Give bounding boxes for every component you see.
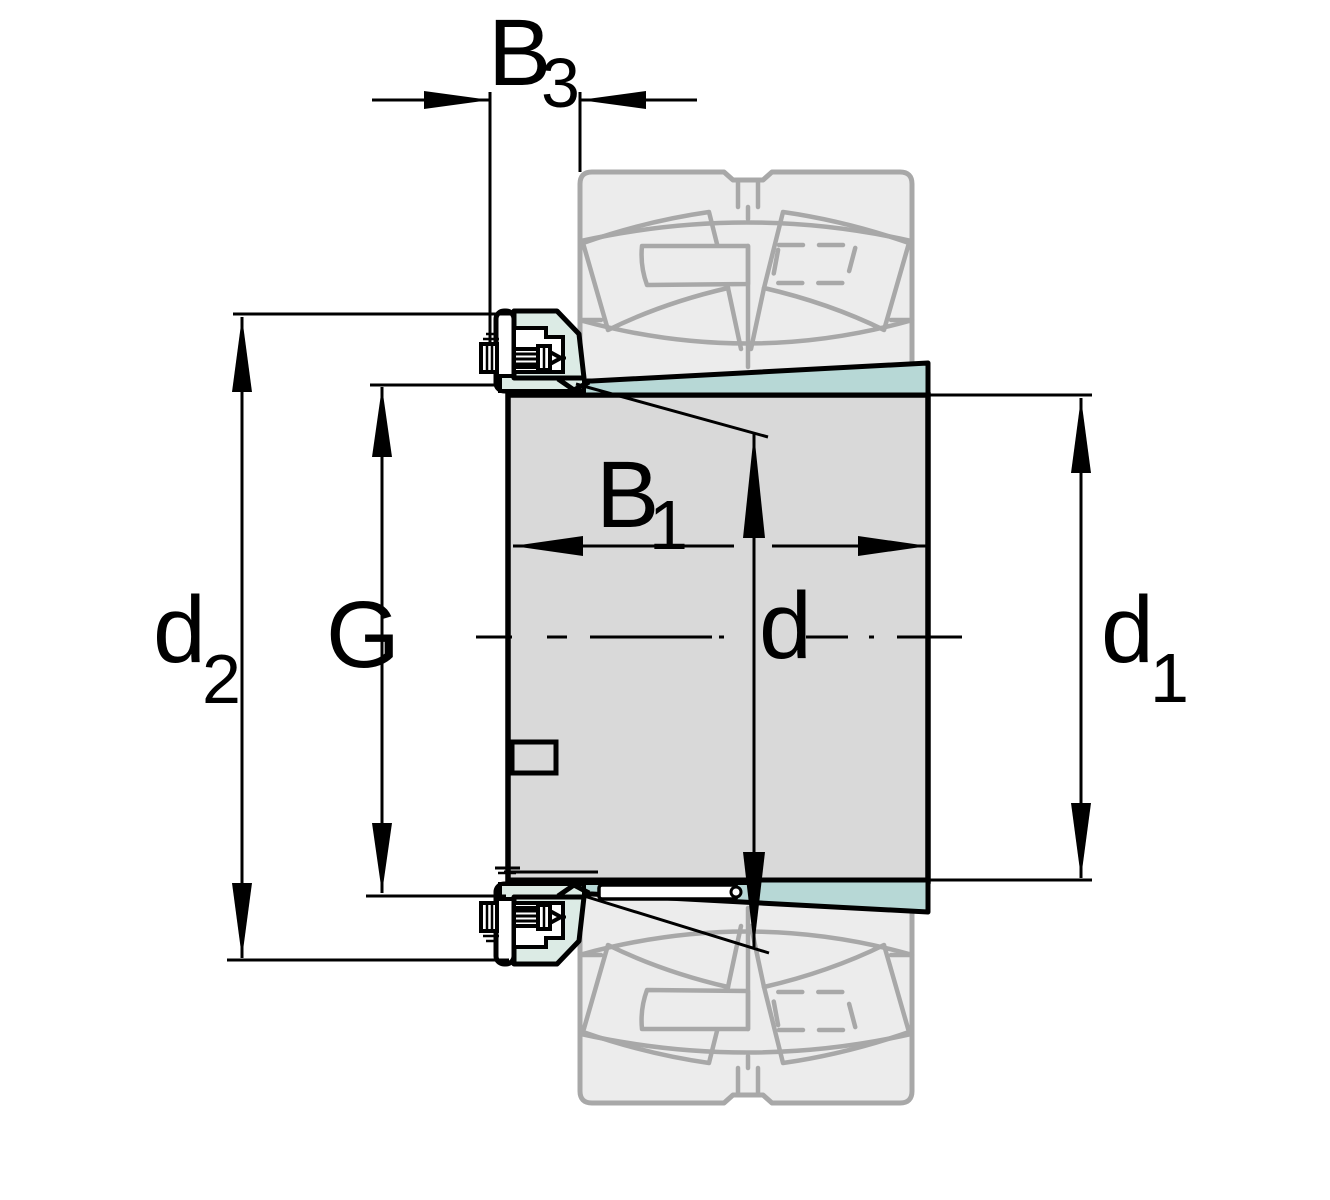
dim-b3-arrow-right: [580, 91, 646, 109]
dim-b3-extension-lines: [490, 92, 580, 344]
dim-label-d1: d: [1101, 577, 1154, 683]
technical-drawing-canvas: B 3 d 2 G B 1 d d 1: [0, 0, 1330, 1200]
dim-b3-arrow-left: [424, 91, 490, 109]
bearing-cage-bar: [642, 246, 748, 285]
dim-label-d2: d: [153, 577, 206, 683]
dim-d2-arrow-bottom: [232, 883, 252, 958]
dim-label-g: G: [326, 582, 400, 688]
dim-label-d: d: [759, 573, 812, 679]
dim-g-arrow-top: [372, 387, 392, 457]
dim-d1-arrow-bottom: [1071, 803, 1091, 878]
dim-d1: d 1: [930, 395, 1189, 880]
keyway-notch: [512, 742, 556, 773]
dim-label-b1-sub: 1: [649, 486, 688, 564]
dim-g-arrow-bottom: [372, 823, 392, 893]
dim-label-d2-sub: 2: [202, 640, 241, 718]
dim-label-b3-sub: 3: [541, 44, 580, 122]
lock-nut: [481, 311, 589, 391]
adapter-sleeve-drawing: B 3 d 2 G B 1 d d 1: [0, 0, 1330, 1200]
dim-d2-arrow-top: [232, 317, 252, 392]
dim-g: G: [326, 385, 506, 896]
ghost-bearing-section: [580, 172, 912, 392]
dim-d1-arrow-top: [1071, 398, 1091, 473]
assembly-half-mirrored: [481, 880, 928, 1103]
assembly-half: [481, 172, 928, 395]
dim-label-d1-sub: 1: [1150, 639, 1189, 717]
sleeve-bore-region: [508, 395, 928, 881]
